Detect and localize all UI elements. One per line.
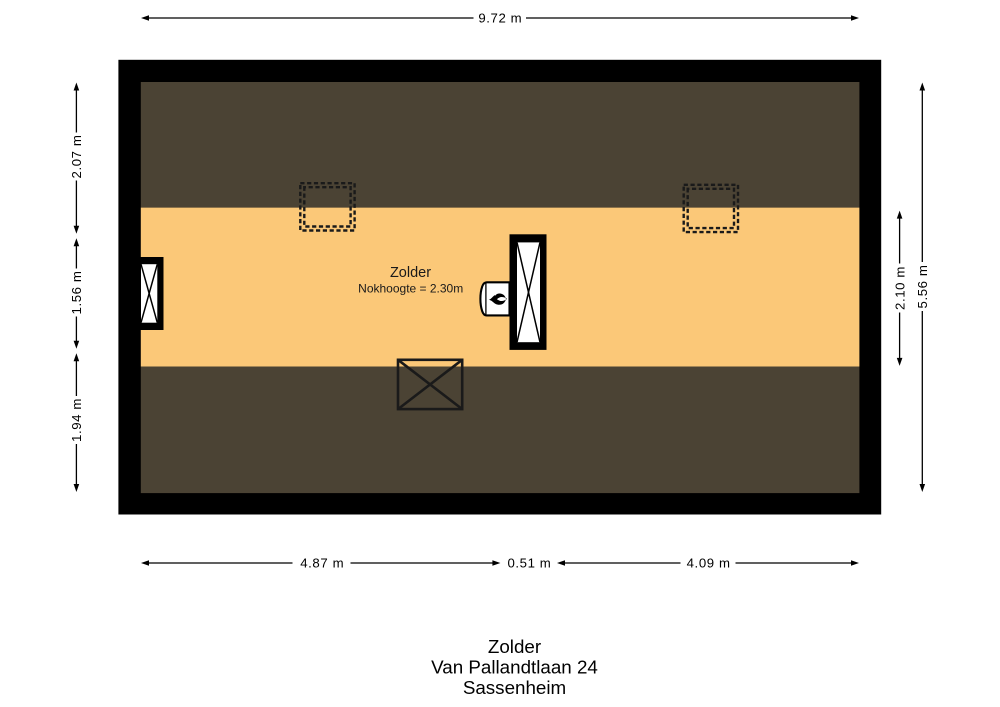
svg-text:4.09 m: 4.09 m — [687, 556, 731, 571]
svg-text:5.56 m: 5.56 m — [915, 265, 930, 309]
svg-text:9.72 m: 9.72 m — [478, 11, 522, 26]
svg-text:Sassenheim: Sassenheim — [463, 677, 566, 698]
svg-text:Van Pallandtlaan 24: Van Pallandtlaan 24 — [431, 657, 598, 678]
svg-text:Zolder: Zolder — [488, 636, 541, 657]
svg-text:4.87 m: 4.87 m — [300, 556, 344, 571]
svg-text:1.56 m: 1.56 m — [69, 271, 84, 315]
svg-text:0.51 m: 0.51 m — [507, 556, 551, 571]
svg-text:Nokhoogte = 2.30m: Nokhoogte = 2.30m — [358, 281, 463, 295]
svg-text:Zolder: Zolder — [390, 265, 431, 281]
svg-text:2.07 m: 2.07 m — [69, 135, 84, 179]
svg-text:1.94 m: 1.94 m — [69, 398, 84, 442]
svg-text:2.10 m: 2.10 m — [892, 266, 907, 310]
